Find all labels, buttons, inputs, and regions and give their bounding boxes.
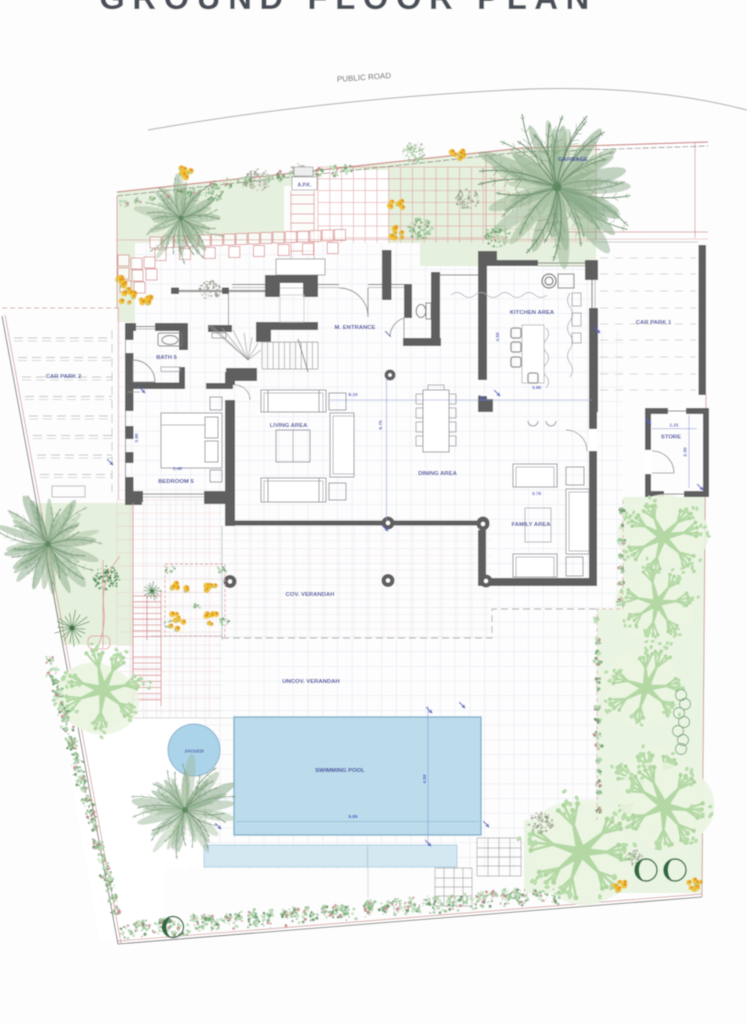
svg-text:GROUND FLOOR PLAN: GROUND FLOOR PLAN: [99, 0, 597, 16]
